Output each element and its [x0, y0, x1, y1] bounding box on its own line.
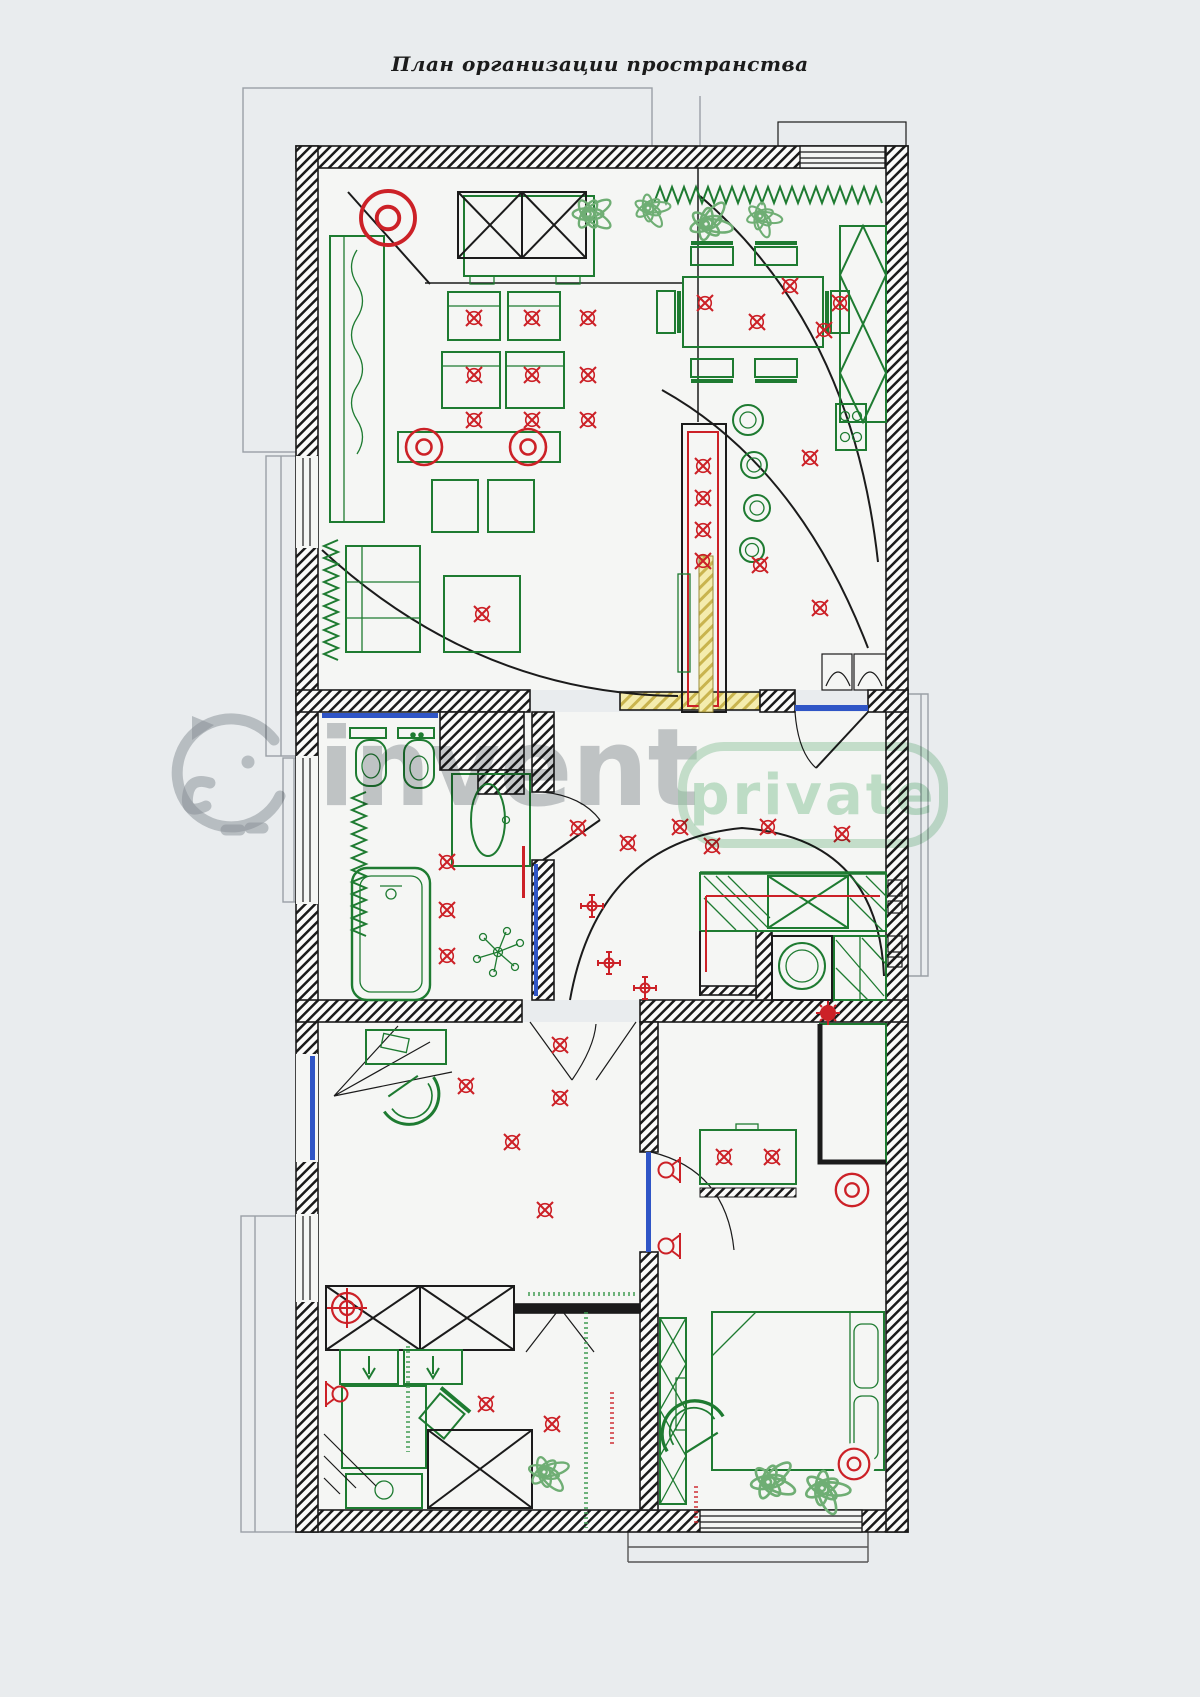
ceiling-spot-light-icon: [695, 458, 711, 474]
ceiling-spot-light-icon: [812, 600, 828, 616]
entrance-door-blue: [795, 705, 868, 711]
ceiling-spot-light-icon: [752, 557, 768, 573]
ceiling-spot-light-icon: [474, 606, 490, 622]
ceiling-spot-light-icon: [524, 367, 540, 383]
ceiling-spot-light-icon: [782, 278, 798, 294]
ceiling-spot-light-icon: [764, 1149, 780, 1165]
ceiling-spot-light-icon: [672, 819, 688, 835]
ceiling-spot-light-icon: [695, 522, 711, 538]
window-blue-mark: [310, 1056, 315, 1160]
ceiling-spot-light-icon: [544, 1416, 560, 1432]
ceiling-spot-light-icon: [504, 1134, 520, 1150]
ceiling-spot-light-icon: [580, 310, 596, 326]
ceiling-spot-light-icon: [466, 310, 482, 326]
ceiling-spot-light-icon: [749, 314, 765, 330]
ceiling-spot-light-icon: [466, 412, 482, 428]
ceiling-spot-light-icon: [695, 490, 711, 506]
ceiling-spot-light-icon: [580, 412, 596, 428]
ceiling-spot-light-icon: [552, 1090, 568, 1106]
ceiling-spot-light-icon: [695, 553, 711, 569]
ceiling-spot-light-icon: [466, 367, 482, 383]
ceiling-spot-light-icon: [524, 412, 540, 428]
ceiling-spot-light-icon: [439, 948, 455, 964]
ceiling-spot-light-icon: [580, 367, 596, 383]
ceiling-spot-light-icon: [832, 295, 848, 311]
ceiling-spot-light-icon: [478, 1396, 494, 1412]
ceiling-spot-light-icon: [697, 295, 713, 311]
ceiling-spot-light-icon: [802, 450, 818, 466]
ceiling-spot-light-icon: [716, 1149, 732, 1165]
ceiling-spot-light-icon: [552, 1037, 568, 1053]
bedroom-door-leaf: [646, 1152, 651, 1252]
ceiling-spot-light-icon: [570, 820, 586, 836]
scanned-floor-plan-page: План организации пространства: [0, 0, 1200, 1697]
ceiling-spot-light-icon: [704, 838, 720, 854]
ceiling-spot-light-icon: [524, 310, 540, 326]
ceiling-spot-light-icon: [537, 1202, 553, 1218]
ceiling-spot-light-icon: [439, 902, 455, 918]
ceiling-spot-light-icon: [439, 854, 455, 870]
ceiling-spot-light-icon: [816, 322, 832, 338]
ceiling-spot-light-icon: [760, 819, 776, 835]
ceiling-spot-light-icon: [620, 835, 636, 851]
floor-plan-drawing: [0, 0, 1200, 1697]
ceiling-spot-light-icon: [834, 826, 850, 842]
ceiling-spot-light-icon: [458, 1078, 474, 1094]
